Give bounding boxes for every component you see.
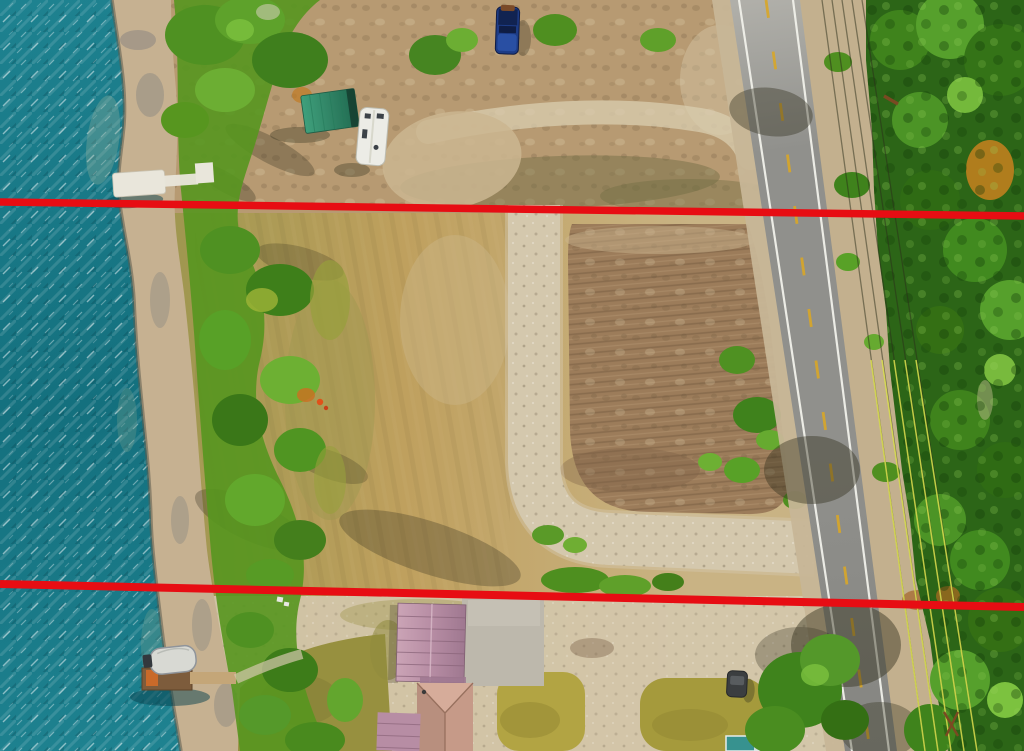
dirt-spot: [570, 638, 614, 658]
dirt-field-dark-patch: [560, 448, 700, 492]
hip-roof-building: [417, 683, 473, 751]
bush: [532, 525, 564, 545]
tall-grass: [314, 446, 346, 514]
white-object: [284, 602, 290, 607]
beach-rocks: [136, 73, 164, 117]
rv-window: [377, 113, 384, 119]
dock-walkway: [190, 672, 236, 684]
bush: [724, 457, 760, 483]
tree-cluster: [252, 32, 328, 88]
orange-marker-spot: [324, 406, 328, 410]
beach-rocks: [120, 30, 156, 50]
shoulder-bush: [824, 52, 852, 72]
bush-cluster: [327, 678, 363, 722]
bush: [719, 346, 755, 374]
dock-shadow: [130, 688, 210, 706]
bush-cluster: [274, 520, 326, 560]
car-glass: [730, 676, 744, 686]
bush-cluster: [239, 695, 291, 735]
lawn-patch-2-shade: [652, 709, 728, 741]
bush-cluster: [212, 394, 268, 446]
tree-highlight: [226, 19, 254, 41]
bush: [698, 453, 722, 471]
house-roof-mauve: [388, 603, 466, 685]
truck-hood: [497, 34, 517, 52]
truck-cargo: [501, 5, 515, 11]
bush: [533, 14, 577, 46]
truck-windshield: [499, 26, 516, 34]
white-object: [277, 597, 284, 603]
bush-cluster: [225, 474, 285, 526]
lawn-patch-1-shade: [500, 702, 560, 738]
shoulder-bush: [834, 172, 870, 198]
dock-shore-pad: [195, 162, 214, 183]
bush: [446, 28, 478, 52]
bush-cluster: [199, 310, 251, 370]
rv-window: [362, 129, 368, 138]
bush: [563, 537, 587, 553]
tree-canopy: [821, 700, 869, 740]
bush-cluster: [226, 612, 274, 648]
concrete-pad-light: [468, 600, 540, 626]
rv-shadow: [334, 163, 370, 177]
mauve-roof-2: [376, 712, 420, 751]
bush: [640, 28, 676, 52]
tree-cluster: [161, 102, 209, 138]
dirt-field-pale-edge: [565, 226, 755, 254]
orange-marker-spot: [317, 399, 323, 405]
shoulder-bush: [836, 253, 860, 271]
aerial-photo-canvas: [0, 0, 1024, 751]
field-pale-patch: [400, 235, 510, 405]
hedge: [652, 573, 684, 591]
submerged-rock: [117, 388, 137, 452]
aerial-photo: [0, 0, 1024, 751]
pale-treetop: [256, 4, 280, 20]
road-shadow: [764, 436, 860, 504]
hedge: [541, 567, 609, 593]
rv-window: [365, 113, 371, 119]
truck-bed: [498, 9, 518, 26]
lower-mauve-roof: [376, 712, 420, 751]
bush-cluster: [200, 226, 260, 274]
dock-platform: [112, 170, 166, 198]
boat-motor: [142, 654, 152, 668]
autumn-bush: [297, 388, 315, 402]
tree-canopy-highlight: [801, 664, 829, 686]
beach-rocks: [171, 496, 189, 544]
tall-grass: [310, 260, 350, 340]
tree-cluster: [195, 68, 255, 112]
beach-rocks: [150, 272, 170, 328]
chimney: [422, 690, 426, 694]
bush-highlight: [246, 288, 278, 312]
beach-rocks: [192, 599, 212, 651]
